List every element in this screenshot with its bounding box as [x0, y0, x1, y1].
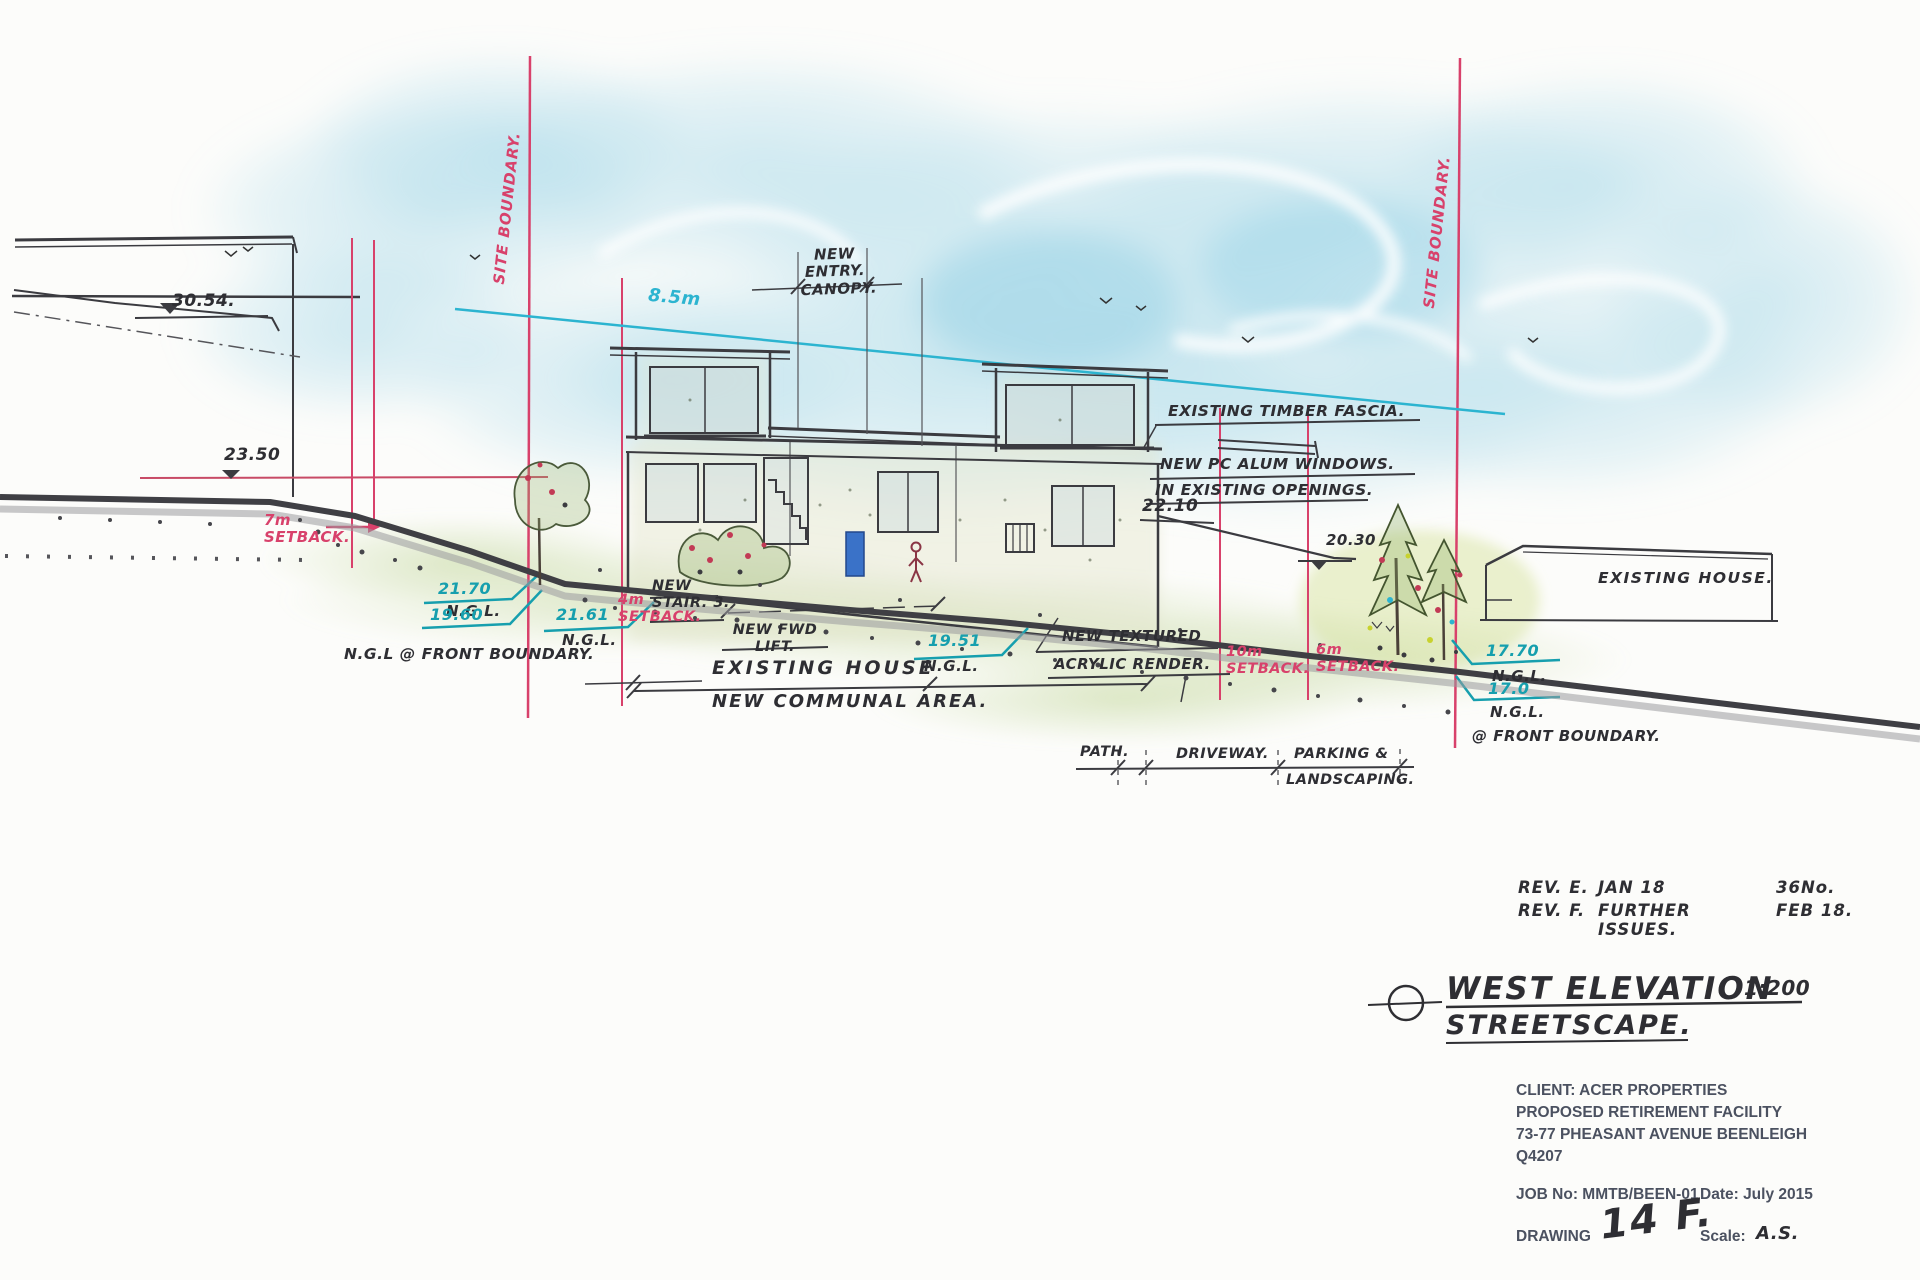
titleblock-address: 73-77 PHEASANT AVENUE BEENLEIGH: [1516, 1126, 1807, 1144]
titleblock-scale-label: Scale:: [1700, 1228, 1746, 1246]
label-setback-7m: 7m SETBACK.: [264, 512, 350, 547]
label-timber-fascia: EXISTING TIMBER FASCIA.: [1168, 403, 1405, 421]
label-existing-house-main: EXISTING HOUSE: [712, 658, 935, 680]
label-path: PATH.: [1080, 744, 1129, 761]
label-ngl-5: N.G.L.: [1490, 704, 1545, 721]
label-ngl-2: N.G.L.: [562, 632, 617, 649]
entry-door: [846, 532, 864, 576]
label-new-communal-area: NEW COMMUNAL AREA.: [712, 692, 988, 713]
label-new-lift: NEW FWD LIFT.: [722, 622, 828, 655]
label-level-2030: 20.30: [1326, 532, 1376, 549]
label-entry-canopy: NEW ENTRY. CANOPY.: [799, 245, 871, 299]
label-driveway: DRIVEWAY.: [1176, 746, 1269, 763]
label-render-2: ACRYLIC RENDER.: [1054, 656, 1211, 673]
label-setback-6m: 6m SETBACK.: [1316, 642, 1399, 675]
label-existing-house-right: EXISTING HOUSE.: [1598, 570, 1774, 588]
label-ngl-170: 17.0: [1488, 680, 1529, 698]
stair-window: [764, 458, 808, 544]
titleblock-date: Date: July 2015: [1700, 1186, 1813, 1204]
label-parking-1: PARKING &: [1294, 746, 1389, 763]
label-ngl-front-boundary: N.G.L @ FRONT BOUNDARY.: [344, 646, 594, 664]
label-new-windows-1: NEW PC ALUM WINDOWS.: [1160, 456, 1395, 474]
label-at-front-boundary: @ FRONT BOUNDARY.: [1472, 728, 1661, 745]
label-ngl-3: N.G.L.: [924, 658, 979, 675]
drawing-scale-ratio: 1:200: [1744, 977, 1810, 1000]
drawing-subtitle: STREETSCAPE.: [1446, 1010, 1693, 1041]
label-ngl-1951: 19.51: [928, 632, 981, 650]
titleblock-client: CLIENT: ACER PROPERTIES: [1516, 1082, 1727, 1100]
titleblock-drawing-label: DRAWING: [1516, 1228, 1591, 1246]
drawing-title: WEST ELEVATION: [1446, 972, 1774, 1008]
label-level-2350: 23.50: [224, 446, 280, 466]
label-ngl-2170: 21.70: [438, 580, 491, 598]
label-new-stair: NEW STAIR. 3.: [652, 578, 730, 611]
label-ngl-1770: 17.70: [1486, 642, 1539, 660]
label-parking-2: LANDSCAPING.: [1286, 772, 1415, 789]
revision-row-e: REV. E. JAN 18 36No.: [1518, 878, 1835, 897]
datum-2350: [140, 470, 548, 479]
label-level-3054: 30.54.: [172, 292, 235, 312]
revision-row-f: REV. F. FURTHER ISSUES. FEB 18.: [1518, 901, 1853, 939]
scanned-elevation-sheet: 30.54. 23.50 7m SETBACK. SITE BOUNDARY. …: [0, 0, 1920, 1280]
label-level-2210: 22.10: [1142, 497, 1198, 517]
titleblock-scale-value: A.S.: [1756, 1224, 1799, 1245]
label-setback-10m: 10m SETBACK.: [1226, 644, 1309, 677]
label-ngl-1960: 19.60: [430, 606, 483, 624]
label-ngl-2161: 21.61: [556, 606, 609, 624]
titleblock-project: PROPOSED RETIREMENT FACILITY: [1516, 1104, 1782, 1122]
label-render-1: NEW TEXTURED: [1062, 628, 1201, 645]
titleblock-postcode: Q4207: [1516, 1148, 1563, 1166]
